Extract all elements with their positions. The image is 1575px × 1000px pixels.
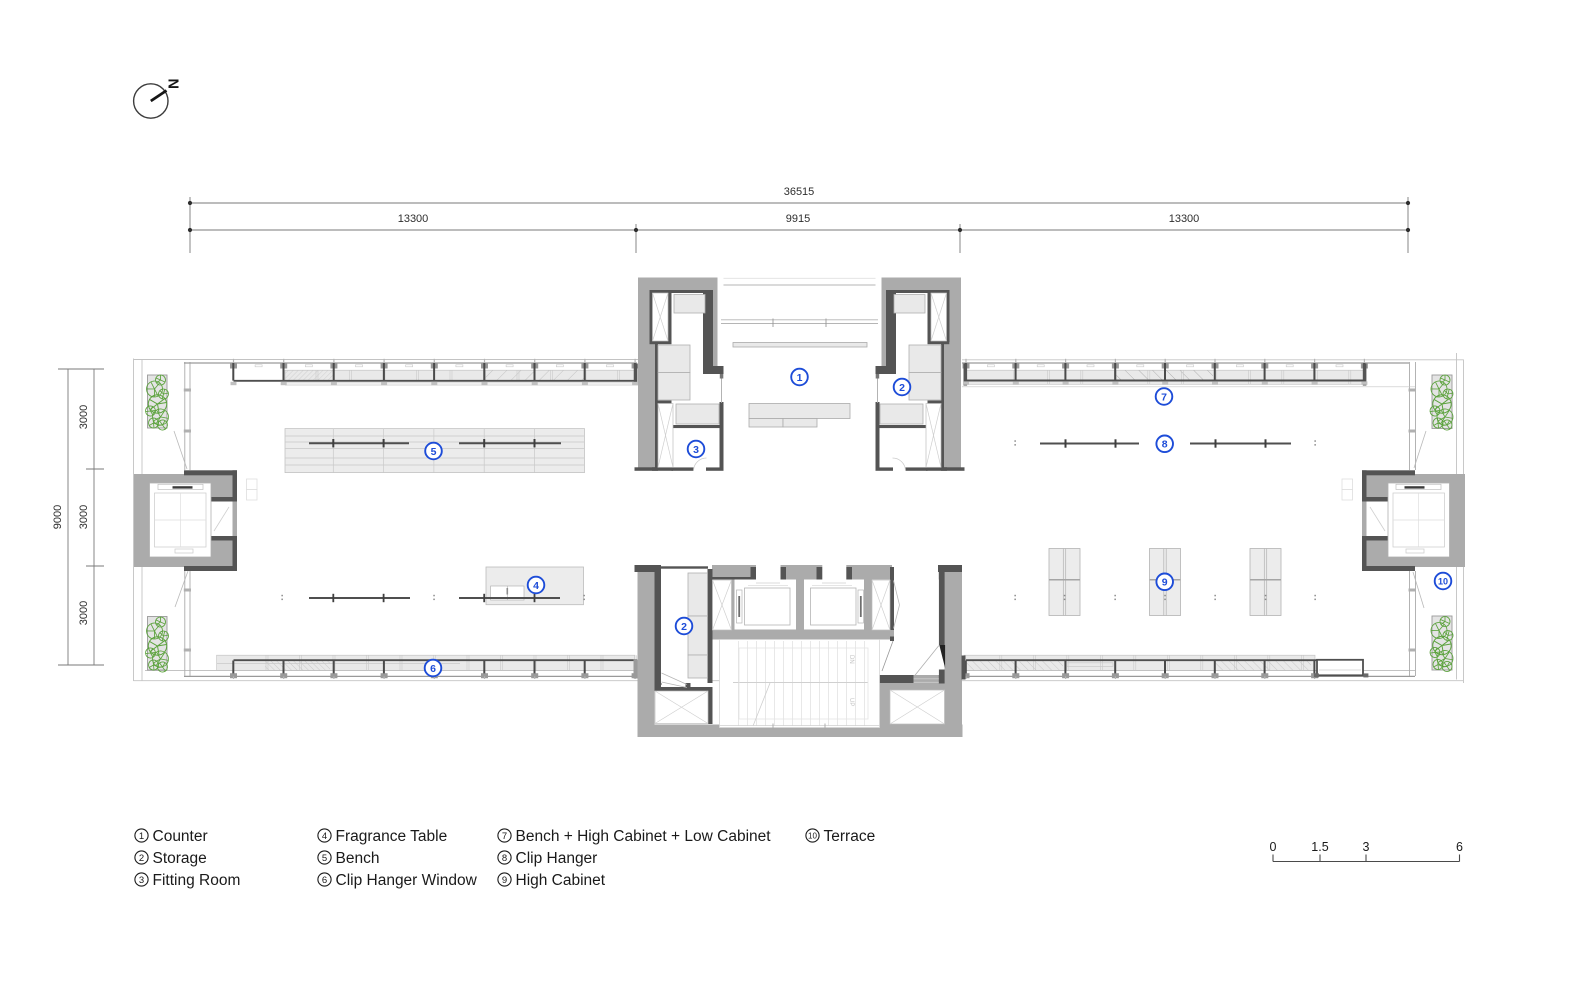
svg-text:1.5: 1.5 — [1311, 840, 1328, 854]
svg-text:13300: 13300 — [398, 213, 429, 225]
svg-text:9000: 9000 — [52, 505, 64, 529]
svg-text:4: 4 — [322, 831, 327, 842]
svg-text:0: 0 — [1270, 840, 1277, 854]
svg-text:UP: UP — [848, 698, 854, 706]
svg-text:3000: 3000 — [78, 505, 90, 529]
svg-text:Clip Hanger: Clip Hanger — [516, 850, 598, 867]
svg-text:8: 8 — [1162, 439, 1168, 451]
svg-text:36515: 36515 — [784, 186, 815, 198]
svg-text:5: 5 — [322, 853, 327, 864]
svg-text:Storage: Storage — [153, 850, 207, 867]
svg-text:DN: DN — [848, 655, 854, 664]
svg-text:Terrace: Terrace — [824, 828, 876, 845]
svg-text:Fitting Room: Fitting Room — [153, 872, 241, 889]
svg-text:N: N — [165, 79, 181, 89]
svg-text:13300: 13300 — [1169, 213, 1200, 225]
svg-text:3: 3 — [139, 875, 144, 886]
svg-text:Clip Hanger Window: Clip Hanger Window — [336, 872, 478, 889]
svg-text:2: 2 — [899, 382, 905, 394]
svg-text:10: 10 — [1438, 577, 1448, 587]
svg-text:6: 6 — [430, 663, 436, 675]
svg-text:8: 8 — [502, 853, 507, 864]
svg-text:3000: 3000 — [78, 601, 90, 625]
svg-text:7: 7 — [502, 831, 507, 842]
svg-text:2: 2 — [681, 621, 687, 633]
svg-text:3000: 3000 — [78, 405, 90, 429]
svg-text:7: 7 — [1161, 391, 1167, 403]
svg-text:2: 2 — [139, 853, 144, 864]
svg-text:5: 5 — [431, 446, 437, 458]
svg-text:10: 10 — [808, 832, 817, 841]
svg-text:4: 4 — [533, 580, 539, 592]
svg-text:9915: 9915 — [786, 213, 810, 225]
svg-text:Fragrance Table: Fragrance Table — [336, 828, 448, 845]
svg-text:Bench: Bench — [336, 850, 380, 867]
svg-text:1: 1 — [797, 372, 803, 384]
svg-text:High Cabinet: High Cabinet — [516, 872, 606, 889]
svg-text:9: 9 — [502, 875, 507, 886]
svg-text:3: 3 — [693, 444, 699, 456]
svg-text:9: 9 — [1162, 577, 1168, 589]
svg-text:1: 1 — [139, 831, 144, 842]
svg-text:6: 6 — [1456, 840, 1463, 854]
svg-text:3: 3 — [1363, 840, 1370, 854]
svg-text:6: 6 — [322, 875, 327, 886]
svg-text:Bench + High Cabinet + Low Cab: Bench + High Cabinet + Low Cabinet — [516, 828, 772, 845]
svg-text:Counter: Counter — [153, 828, 208, 845]
